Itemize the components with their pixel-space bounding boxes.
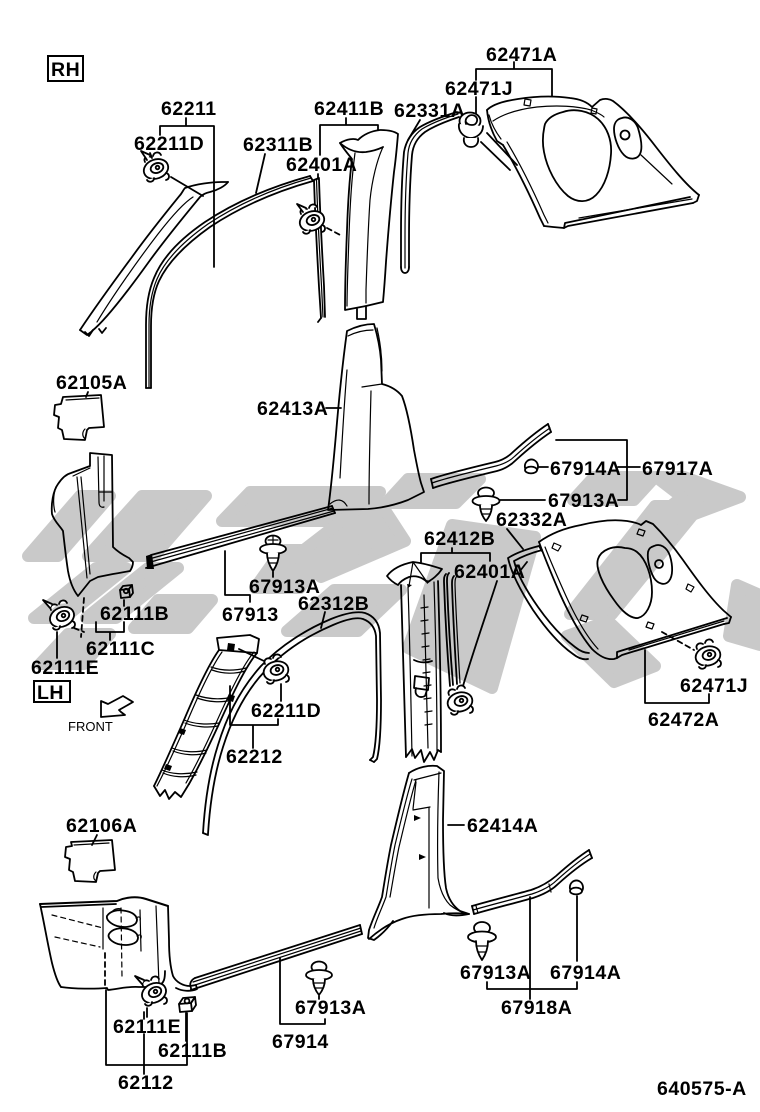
- svg-text:62111B: 62111B: [158, 1040, 227, 1062]
- svg-text:FRONT: FRONT: [68, 719, 113, 734]
- svg-text:62472A: 62472A: [648, 709, 719, 731]
- svg-text:62106A: 62106A: [66, 815, 137, 837]
- svg-text:LH: LH: [37, 682, 64, 704]
- svg-text:62412B: 62412B: [424, 528, 495, 550]
- svg-text:62411B: 62411B: [314, 98, 384, 120]
- svg-text:62401A: 62401A: [286, 154, 357, 176]
- svg-text:62414A: 62414A: [467, 815, 538, 837]
- svg-text:62413A: 62413A: [257, 398, 328, 420]
- svg-text:67917A: 67917A: [642, 458, 713, 480]
- svg-text:62111B: 62111B: [100, 603, 169, 625]
- svg-text:62111E: 62111E: [113, 1016, 181, 1038]
- svg-text:67914A: 67914A: [550, 962, 621, 984]
- svg-text:62211: 62211: [161, 98, 217, 120]
- svg-text:67913: 67913: [222, 604, 279, 626]
- svg-text:62471J: 62471J: [680, 675, 748, 697]
- svg-text:RH: RH: [51, 59, 80, 81]
- svg-text:67914A: 67914A: [550, 458, 621, 480]
- svg-text:62471A: 62471A: [486, 44, 557, 66]
- svg-text:67913A: 67913A: [295, 997, 366, 1019]
- svg-text:62111E: 62111E: [31, 657, 99, 679]
- svg-text:62332A: 62332A: [496, 509, 567, 531]
- svg-text:640575-A: 640575-A: [657, 1078, 747, 1100]
- svg-text:67913A: 67913A: [460, 962, 531, 984]
- svg-text:62112: 62112: [118, 1072, 174, 1094]
- svg-text:62211D: 62211D: [251, 700, 321, 722]
- svg-text:62471J: 62471J: [445, 78, 513, 100]
- svg-text:67918A: 67918A: [501, 997, 572, 1019]
- svg-text:67914: 67914: [272, 1031, 329, 1053]
- svg-text:62105A: 62105A: [56, 372, 127, 394]
- svg-text:62212: 62212: [226, 746, 283, 768]
- svg-text:62311B: 62311B: [243, 134, 313, 156]
